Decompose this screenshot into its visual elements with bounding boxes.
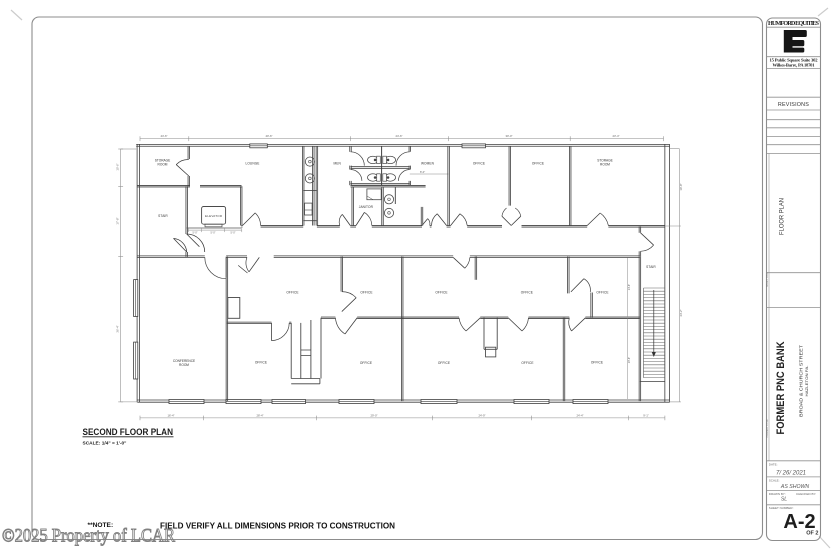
svg-text:DATE:: DATE: <box>769 462 778 466</box>
svg-text:©2025 Property of LCAR: ©2025 Property of LCAR <box>2 527 176 547</box>
svg-text:29'-0": 29'-0" <box>370 413 377 417</box>
svg-text:24'-4": 24'-4" <box>576 413 583 417</box>
svg-text:8'-0": 8'-0" <box>420 170 425 174</box>
svg-text:A-2: A-2 <box>783 511 815 533</box>
svg-text:CHECKED BY:: CHECKED BY: <box>796 492 816 496</box>
svg-text:30'-0": 30'-0" <box>505 134 512 138</box>
svg-text:ELEVATOR: ELEVATOR <box>205 214 223 218</box>
svg-text:OFFICE: OFFICE <box>521 291 533 295</box>
svg-text:28'-4": 28'-4" <box>256 413 263 417</box>
svg-text:OFFICE: OFFICE <box>521 361 533 365</box>
svg-text:9'-1": 9'-1" <box>643 413 649 417</box>
svg-text:Wilkes-Barre, PA 18701: Wilkes-Barre, PA 18701 <box>773 63 816 68</box>
svg-text:FLOOR PLAN: FLOOR PLAN <box>779 198 786 235</box>
svg-text:JANITOR: JANITOR <box>359 205 374 209</box>
svg-text:HUMFORD EQUITIES: HUMFORD EQUITIES <box>768 20 820 27</box>
svg-text:SECOND FLOOR PLAN: SECOND FLOOR PLAN <box>83 426 174 437</box>
svg-text:16'-4": 16'-4" <box>167 413 174 417</box>
svg-text:DRAWN BY:: DRAWN BY: <box>769 492 786 496</box>
svg-text:SCALE:: SCALE: <box>769 478 780 482</box>
svg-text:5'-0": 5'-0" <box>231 232 236 235</box>
svg-text:SHEET NUMBER:: SHEET NUMBER: <box>769 506 794 510</box>
svg-text:SCALE: 1/4" = 1'-0": SCALE: 1/4" = 1'-0" <box>83 440 127 446</box>
svg-text:24'-6": 24'-6" <box>395 134 402 138</box>
svg-text:BROAD & CHURCH STREET: BROAD & CHURCH STREET <box>799 345 804 417</box>
svg-text:5'-0": 5'-0" <box>193 232 198 235</box>
svg-text:OFFICE: OFFICE <box>438 361 450 365</box>
svg-text:19'-8": 19'-8" <box>679 183 683 190</box>
svg-text:7/ 26/ 2021: 7/ 26/ 2021 <box>776 471 806 477</box>
svg-text:PROJECT TITLE: PROJECT TITLE <box>766 419 769 438</box>
svg-text:MEN: MEN <box>334 161 342 165</box>
svg-text:HAZLETON PA.: HAZLETON PA. <box>804 366 809 397</box>
svg-text:OFFICE: OFFICE <box>596 291 608 295</box>
svg-text:REVISIONS: REVISIONS <box>778 102 809 108</box>
svg-text:OFFICE: OFFICE <box>532 161 544 165</box>
svg-text:FORMER PNC BANK: FORMER PNC BANK <box>775 341 787 434</box>
svg-text:40'-6": 40'-6" <box>265 134 272 138</box>
svg-text:14'-6": 14'-6" <box>628 284 631 290</box>
svg-text:44'-2": 44'-2" <box>679 309 683 316</box>
svg-text:44'-6": 44'-6" <box>160 134 167 138</box>
svg-text:OFFICE: OFFICE <box>360 291 372 295</box>
svg-text:OFFICE: OFFICE <box>255 361 267 365</box>
svg-text:FIELD VERIFY ALL DIMENSIONS PR: FIELD VERIFY ALL DIMENSIONS PRIOR TO CON… <box>160 521 395 530</box>
svg-text:WOMEN: WOMEN <box>421 161 435 165</box>
svg-text:OFFICE: OFFICE <box>360 361 372 365</box>
svg-text:STAIR: STAIR <box>158 214 168 218</box>
svg-text:OF 2: OF 2 <box>806 531 818 537</box>
svg-text:SL: SL <box>781 497 787 503</box>
svg-text:AS SHOWN: AS SHOWN <box>780 484 809 490</box>
svg-text:STAIR: STAIR <box>646 265 656 269</box>
svg-text:10'-6": 10'-6" <box>116 163 120 170</box>
svg-text:5'-0": 5'-0" <box>211 232 216 235</box>
svg-text:OFFICE: OFFICE <box>473 161 485 165</box>
svg-text:OFFICE: OFFICE <box>435 291 447 295</box>
svg-text:SHEET TITLE: SHEET TITLE <box>766 272 769 287</box>
svg-text:23'-4": 23'-4" <box>612 134 619 138</box>
svg-text:24'-9": 24'-9" <box>478 413 485 417</box>
svg-text:17'-8": 17'-8" <box>116 217 120 224</box>
svg-text:OFFICE: OFFICE <box>591 361 603 365</box>
svg-text:LOUNGE: LOUNGE <box>245 161 259 165</box>
svg-text:36'-4": 36'-4" <box>116 325 120 332</box>
svg-text:OFFICE: OFFICE <box>286 291 298 295</box>
svg-text:19'-6": 19'-6" <box>628 357 631 363</box>
